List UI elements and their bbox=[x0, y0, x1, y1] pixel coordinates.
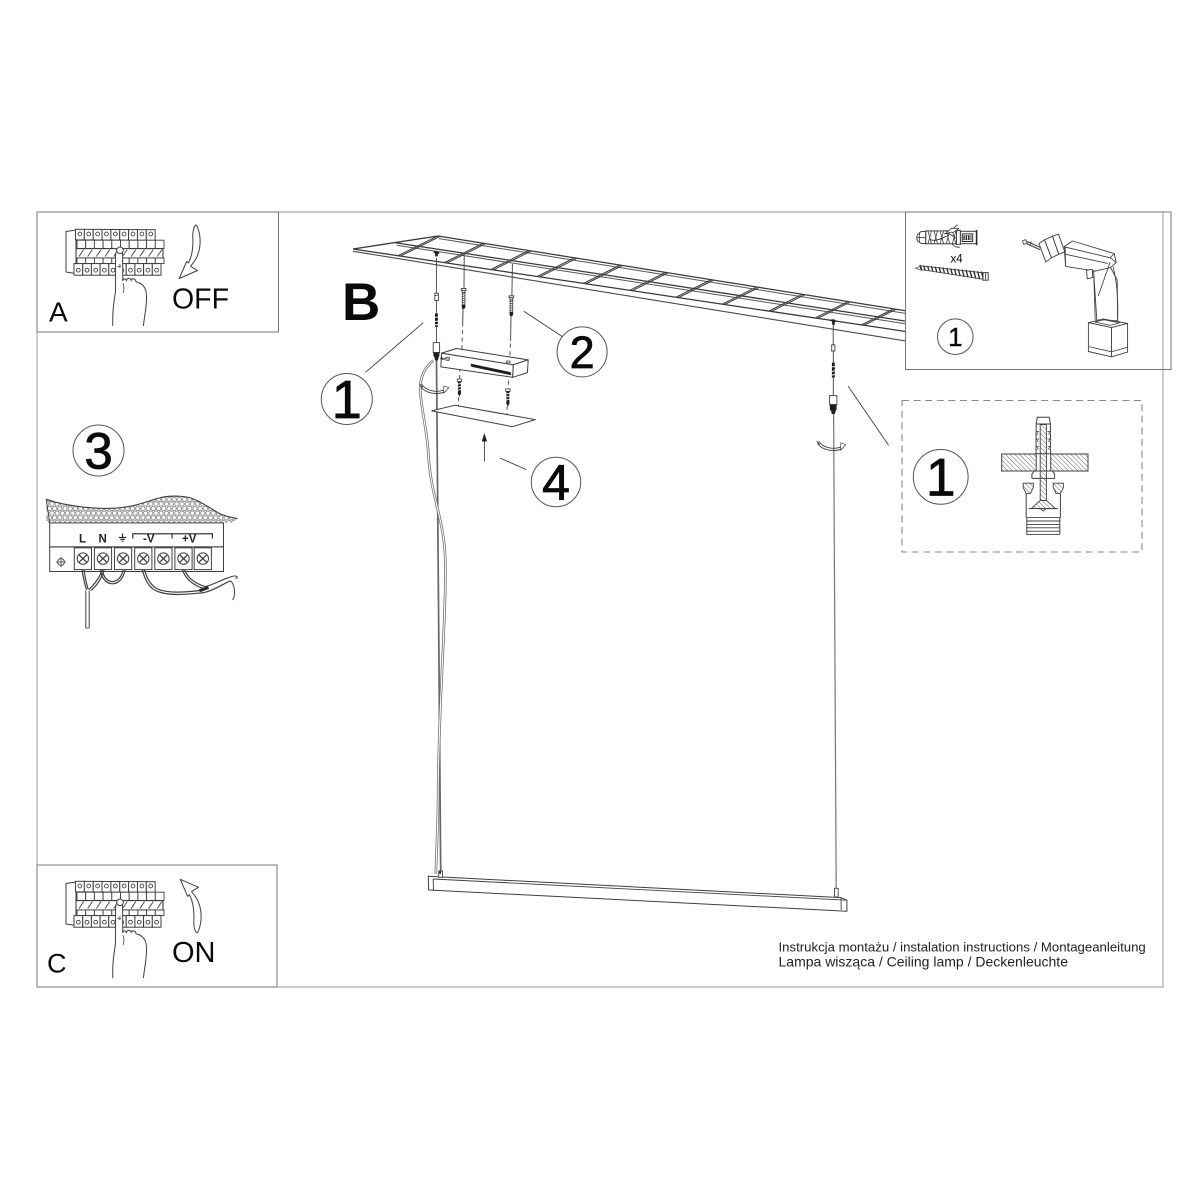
svg-text:1: 1 bbox=[948, 322, 962, 352]
svg-text:L: L bbox=[79, 534, 86, 546]
svg-text:3: 3 bbox=[84, 423, 112, 480]
svg-text:C: C bbox=[47, 949, 67, 979]
svg-text:1: 1 bbox=[926, 449, 955, 508]
svg-text:OFF: OFF bbox=[172, 284, 229, 316]
svg-text:x4: x4 bbox=[951, 254, 964, 266]
svg-text:2: 2 bbox=[570, 327, 595, 378]
svg-text:Instrukcja montażu / instalati: Instrukcja montażu / instalation instruc… bbox=[779, 940, 1146, 955]
svg-text:A: A bbox=[49, 297, 68, 328]
svg-text:ON: ON bbox=[172, 937, 216, 969]
svg-text:-V: -V bbox=[143, 534, 155, 546]
svg-text:Lampa wisząca / Ceiling lamp /: Lampa wisząca / Ceiling lamp / Deckenleu… bbox=[779, 954, 1069, 970]
svg-text:4: 4 bbox=[542, 455, 570, 511]
svg-text:B: B bbox=[342, 273, 380, 332]
svg-text:+V: +V bbox=[182, 534, 197, 546]
svg-text:1: 1 bbox=[332, 370, 362, 430]
svg-text:N: N bbox=[99, 534, 107, 546]
